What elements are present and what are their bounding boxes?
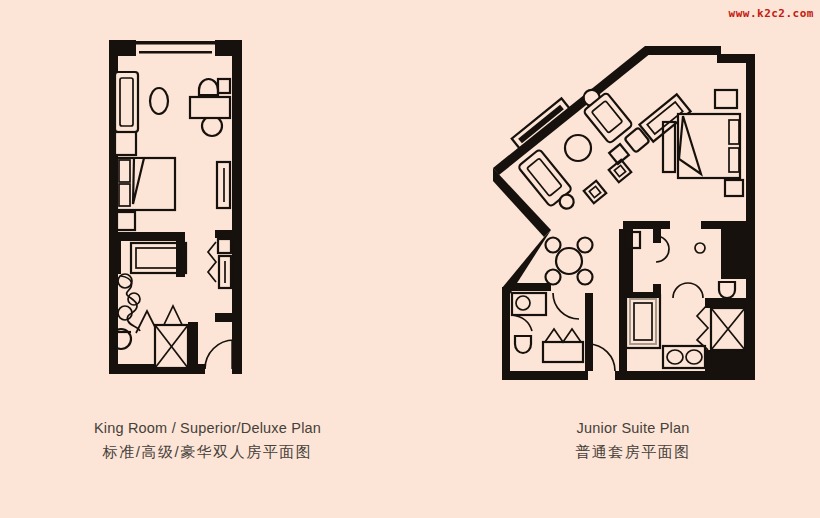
watermark: www.k2c2.com [729, 7, 814, 20]
coffee-table-symbol [150, 88, 168, 114]
folding-door-symbol [545, 329, 581, 342]
dining-chair-symbol [546, 270, 561, 285]
king-bed-area [115, 132, 230, 230]
junior-suite-caption-zh: 普通套房平面图 [487, 443, 779, 462]
dining-chair-symbol [578, 270, 593, 285]
shelf-symbol [218, 239, 231, 253]
junior-suite-caption: Junior Suite Plan 普通套房平面图 [487, 420, 779, 462]
armchair-symbol [575, 82, 633, 144]
folding-door-symbol [697, 304, 708, 350]
vanity-counter-symbol [663, 346, 705, 368]
bathroom-divider-wall [118, 232, 183, 241]
king-room-caption-en: King Room / Superior/Deluxe Plan [55, 420, 360, 436]
junior-dining-area [546, 238, 593, 285]
sink-symbol [128, 293, 140, 305]
junior-bedroom [609, 90, 743, 196]
armchair-symbol [199, 79, 218, 95]
nightstand-symbol [115, 132, 136, 155]
toilet-symbol [515, 336, 531, 353]
junior-wardrobe-area [697, 304, 745, 350]
dining-chair-symbol [578, 238, 593, 253]
double-door-symbol [673, 283, 703, 298]
sink-symbol [118, 306, 132, 320]
coffee-table-symbol [565, 135, 591, 161]
window-symbol [133, 41, 218, 45]
king-entry-area [205, 239, 234, 369]
nightstand-symbol [715, 90, 737, 108]
sofa-symbol [115, 72, 138, 132]
nightstand-symbol [725, 180, 743, 196]
door-arc [553, 293, 579, 319]
nightstand-symbol [117, 212, 135, 230]
side-table-symbol [218, 79, 230, 93]
toilet-paper-symbol [695, 243, 705, 253]
entry-door-arc [205, 340, 234, 369]
closet-door-symbol [208, 242, 216, 282]
junior-powder-room [512, 293, 583, 362]
king-room-caption: King Room / Superior/Deluxe Plan 标准/高级/豪… [55, 420, 360, 462]
toilet-symbol [719, 282, 735, 298]
vanity-counter-symbol [512, 293, 546, 315]
side-table-symbol [584, 181, 607, 204]
luggage-rack-symbol [543, 342, 583, 362]
king-living-area [115, 72, 230, 136]
desk-symbol [190, 97, 230, 118]
junior-suite-caption-en: Junior Suite Plan [487, 420, 779, 436]
floor-plans-page: www.k2c2.com [0, 0, 820, 518]
dining-chair-symbol [546, 238, 561, 253]
king-room-caption-zh: 标准/高级/豪华双人房平面图 [55, 443, 360, 462]
king-room-floorplan [103, 40, 248, 380]
junior-suite-floorplan [493, 46, 755, 395]
dining-table-symbol [556, 248, 582, 274]
